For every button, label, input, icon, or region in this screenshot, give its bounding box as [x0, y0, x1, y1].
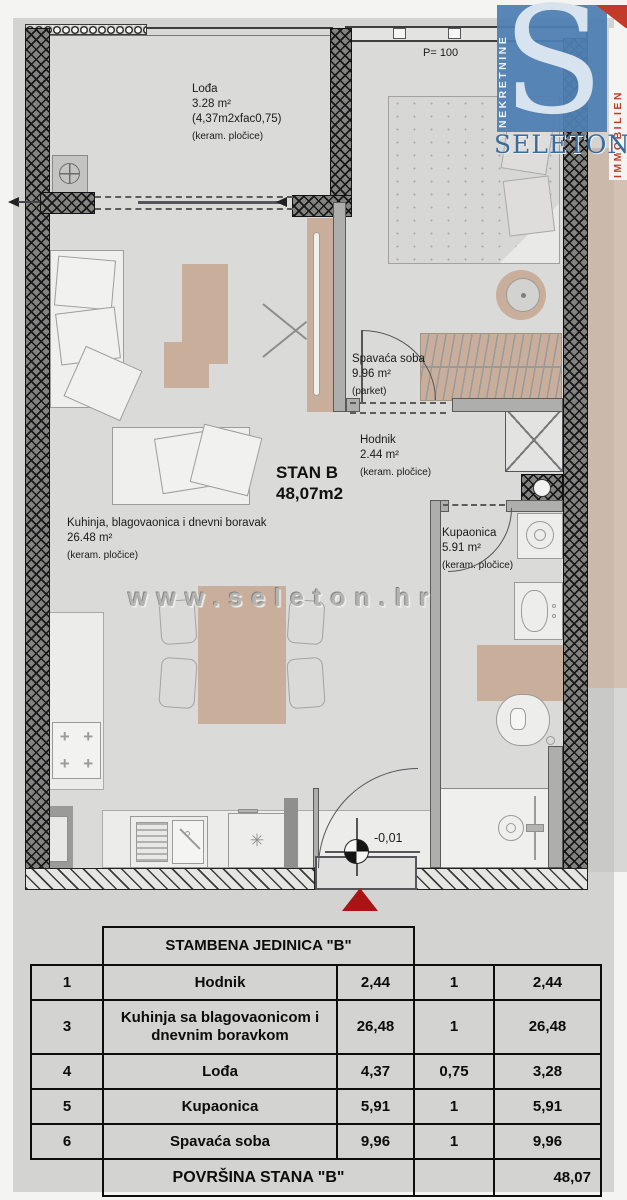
- unit-area: 48,07m2: [276, 483, 343, 504]
- right-margin-strip-lower: [588, 688, 627, 872]
- bath-counter: [477, 645, 563, 701]
- washbasin-knob: [552, 614, 556, 618]
- vent-shaft: [505, 408, 563, 472]
- sink-drainer: [136, 822, 168, 862]
- row-coef: 1: [414, 1000, 494, 1054]
- row-name: Kuhinja sa blagovaonicom i dnevnim borav…: [103, 1000, 337, 1054]
- seleton-logo: S NEKRETNINE IMMOBILIEN SELETON: [0, 0, 627, 190]
- row-no: 3: [31, 1000, 103, 1054]
- room-name: Spavaća soba: [352, 352, 425, 367]
- table-row: 5 Kupaonica 5,91 1 5,91: [31, 1089, 601, 1124]
- row-area: 9,96: [337, 1124, 414, 1159]
- shower-tap: [526, 824, 544, 832]
- empty-cell: [31, 1159, 103, 1196]
- slide-arrow-line: [18, 201, 40, 203]
- sink-dot: [185, 831, 190, 836]
- wall-bath-left: [430, 500, 441, 868]
- hall-label: Hodnik 2.44 m² (keram. pločice): [360, 433, 431, 479]
- row-total: 26,48: [494, 1000, 601, 1054]
- sink-basin: [172, 820, 204, 864]
- row-name: Lođa: [103, 1054, 337, 1089]
- shower-drain-inner: [506, 823, 516, 833]
- unit-name: STAN B: [276, 462, 343, 483]
- wall-bottom-left: [25, 868, 315, 890]
- room-name: Hodnik: [360, 433, 431, 448]
- room-finish: (keram. pločice): [360, 466, 431, 479]
- footer-total: 48,07: [494, 1159, 601, 1196]
- logo-nekretnine: NEKRETNINE: [497, 10, 509, 128]
- stove: ++++: [52, 722, 101, 779]
- table-row: 1 Hodnik 2,44 1 2,44: [31, 965, 601, 1000]
- row-total: 5,91: [494, 1089, 601, 1124]
- wall-bath-top-right: [506, 500, 563, 512]
- sliding-door-panel: [138, 201, 286, 204]
- room-finish: (parket): [352, 385, 425, 398]
- empty-cell: [414, 927, 494, 965]
- chair: [286, 657, 325, 709]
- unit-title: STAN B 48,07m2: [276, 462, 343, 505]
- hall-closet-door: [313, 232, 320, 396]
- dishwasher-icon: ✳: [250, 831, 264, 851]
- bedroom-threshold: [350, 412, 446, 414]
- room-finish: (keram. pločice): [442, 559, 513, 572]
- table-row: 3 Kuhinja sa blagovaonicom i dnevnim bor…: [31, 1000, 601, 1054]
- wall-bottom-right: [415, 868, 588, 890]
- watermark: www.seleton.hr: [128, 584, 548, 613]
- burner-icon: +: [83, 727, 93, 747]
- chair: [158, 657, 197, 709]
- entrance-marker: [342, 888, 378, 911]
- table-title-row: STAMBENA JEDINICA "B": [31, 927, 601, 965]
- burner-icon: +: [60, 727, 70, 747]
- logo-wordmark: SELETON: [494, 130, 627, 159]
- row-no: 5: [31, 1089, 103, 1124]
- room-finish: (keram. pločice): [67, 549, 266, 562]
- kitchen-pillar: [284, 798, 298, 868]
- bath-threshold: [443, 504, 505, 506]
- wall-bedroom-bottom: [452, 398, 563, 412]
- room-area: 26.48 m²: [67, 531, 266, 546]
- room-name: Kupaonica: [442, 526, 513, 541]
- coffee-table-small: [164, 342, 209, 388]
- slide-arrow-icon: [276, 197, 287, 207]
- row-name: Kupaonica: [103, 1089, 337, 1124]
- wardrobe-rail: [420, 366, 562, 368]
- level-marker-hline: [325, 851, 420, 853]
- burner-icon: +: [60, 754, 70, 774]
- row-area: 5,91: [337, 1089, 414, 1124]
- logo-letter: S: [500, 0, 606, 149]
- toilet-flush-dot: [546, 736, 555, 745]
- washbasin-knob: [552, 604, 556, 608]
- kitchen-block-inner: [47, 816, 68, 862]
- row-coef: 0,75: [414, 1054, 494, 1089]
- wall-bedroom-door-stub: [346, 398, 360, 412]
- room-area: 2.44 m²: [360, 448, 431, 463]
- level-marker-icon: [344, 839, 369, 864]
- wall-shower-stub: [548, 746, 563, 868]
- row-area: 4,37: [337, 1054, 414, 1089]
- sliding-door-track: [95, 196, 293, 198]
- sliding-door-track: [95, 208, 293, 210]
- row-coef: 1: [414, 965, 494, 1000]
- level-value: -0,01: [374, 830, 403, 846]
- bedroom-label: Spavaća soba 9.96 m² (parket): [352, 352, 425, 398]
- empty-cell: [494, 927, 601, 965]
- table-title: STAMBENA JEDINICA "B": [103, 927, 414, 965]
- row-area: 2,44: [337, 965, 414, 1000]
- dishwasher-handle: [238, 809, 258, 813]
- footer-label: POVRŠINA STANA "B": [103, 1159, 414, 1196]
- row-name: Spavaća soba: [103, 1124, 337, 1159]
- table-row: 4 Lođa 4,37 0,75 3,28: [31, 1054, 601, 1089]
- row-total: 2,44: [494, 965, 601, 1000]
- burner-icon: +: [83, 754, 93, 774]
- row-area: 26,48: [337, 1000, 414, 1054]
- room-area: 5.91 m²: [442, 541, 513, 556]
- hall-closet: [307, 218, 333, 412]
- room-area: 9.96 m²: [352, 367, 425, 382]
- pipe-shaft-circle: [533, 479, 551, 497]
- right-margin-strip: [588, 148, 627, 688]
- room-name: Kuhinja, blagovaonica i dnevni boravak: [67, 516, 266, 531]
- bedroom-threshold: [350, 402, 446, 404]
- sofa-cushion: [54, 256, 116, 311]
- row-no: 4: [31, 1054, 103, 1089]
- row-coef: 1: [414, 1089, 494, 1124]
- bath-label: Kupaonica 5.91 m² (keram. pločice): [442, 526, 513, 572]
- footer-empty-cell: [414, 1159, 494, 1196]
- kitchen-label: Kuhinja, blagovaonica i dnevni boravak 2…: [67, 516, 266, 562]
- washing-machine-drum-inner: [534, 529, 546, 541]
- table-row: 6 Spavaća soba 9,96 1 9,96: [31, 1124, 601, 1159]
- floor-plan: ++++ ✳: [0, 0, 627, 920]
- row-no: 1: [31, 965, 103, 1000]
- empty-cell: [31, 927, 103, 965]
- row-total: 3,28: [494, 1054, 601, 1089]
- toilet-bowl: [510, 708, 526, 730]
- bedside-table-dot: [521, 293, 526, 298]
- table-footer-row: POVRŠINA STANA "B" 48,07: [31, 1159, 601, 1196]
- row-total: 9,96: [494, 1124, 601, 1159]
- wall-living-bedroom: [333, 202, 346, 412]
- row-coef: 1: [414, 1124, 494, 1159]
- row-no: 6: [31, 1124, 103, 1159]
- wall-stub-left: [40, 192, 95, 214]
- row-name: Hodnik: [103, 965, 337, 1000]
- dishwasher: ✳: [228, 813, 286, 868]
- area-table: STAMBENA JEDINICA "B" 1 Hodnik 2,44 1 2,…: [30, 926, 602, 1197]
